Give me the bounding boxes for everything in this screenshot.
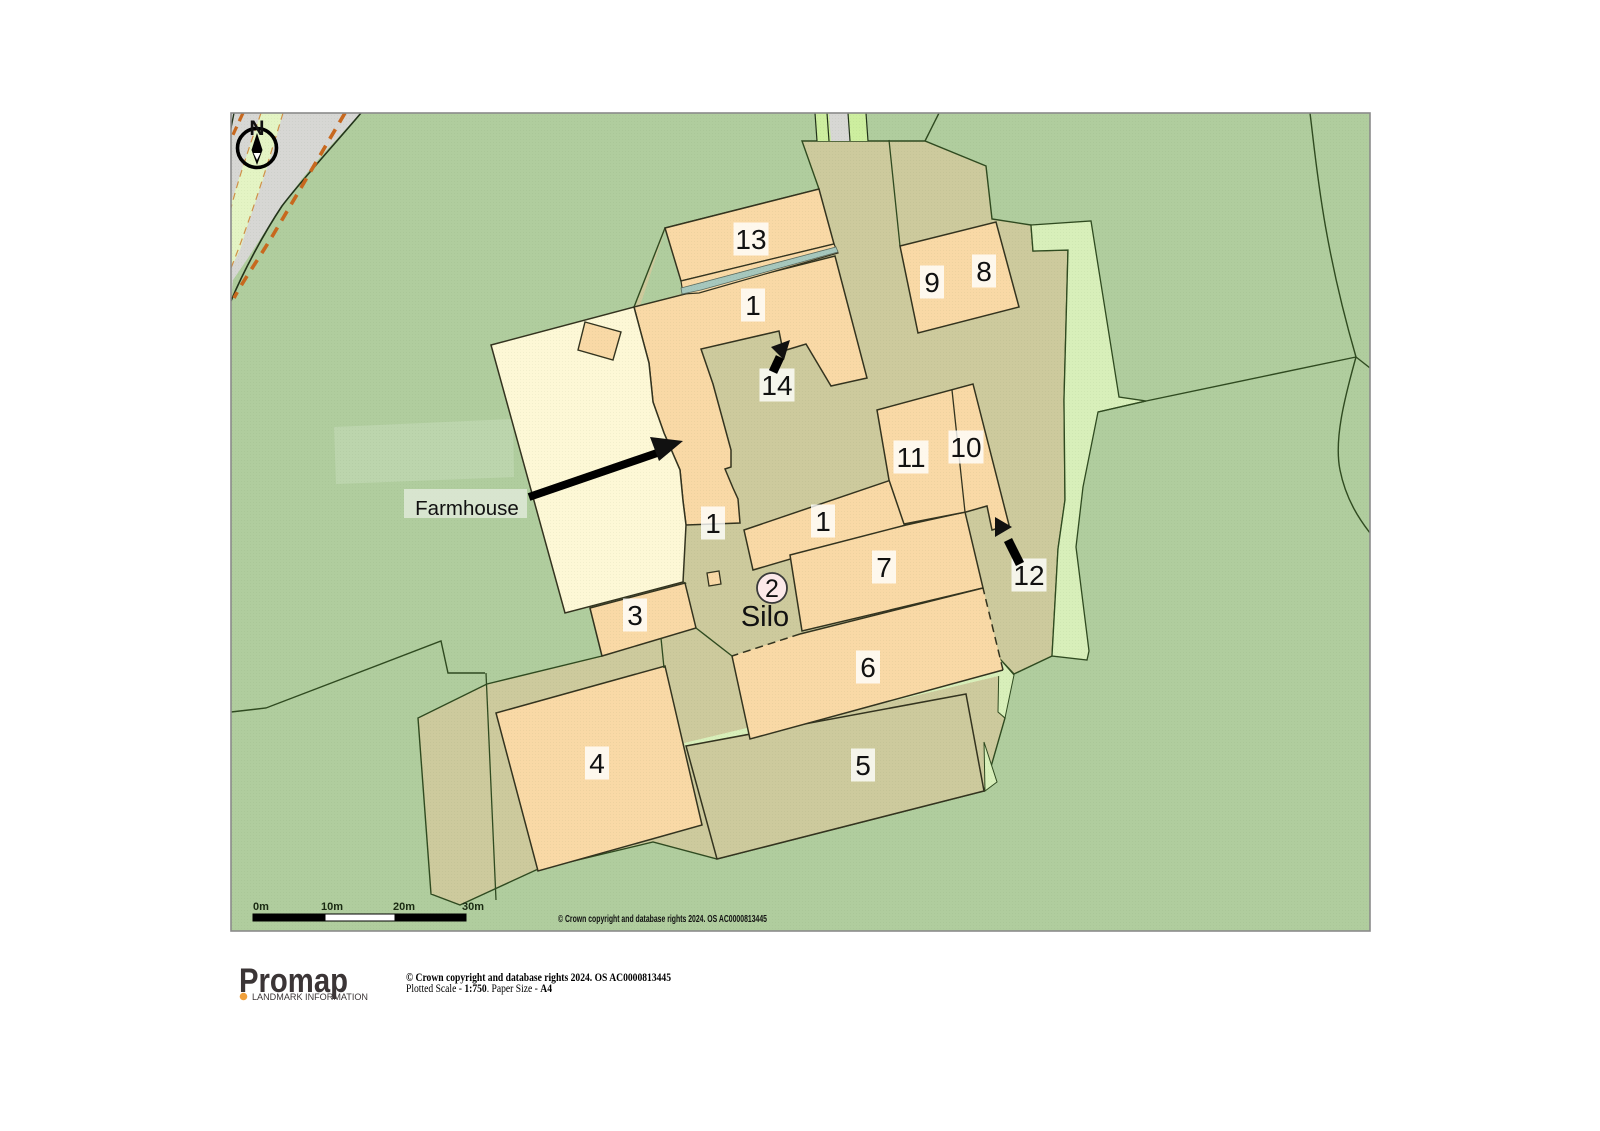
svg-text:4: 4 xyxy=(589,748,605,779)
svg-text:3: 3 xyxy=(627,600,643,631)
svg-text:5: 5 xyxy=(855,750,871,781)
svg-text:© Crown copyright and database: © Crown copyright and database rights 20… xyxy=(558,914,767,925)
svg-text:1: 1 xyxy=(745,290,761,321)
svg-text:2: 2 xyxy=(765,575,779,603)
svg-text:10m: 10m xyxy=(321,901,343,913)
svg-text:30m: 30m xyxy=(462,901,484,913)
svg-text:11: 11 xyxy=(896,442,925,473)
svg-text:8: 8 xyxy=(976,256,992,287)
svg-text:Silo: Silo xyxy=(741,601,789,633)
svg-text:0m: 0m xyxy=(253,901,269,913)
svg-text:6: 6 xyxy=(860,652,876,683)
svg-text:Farmhouse: Farmhouse xyxy=(415,497,519,520)
svg-text:20m: 20m xyxy=(393,901,415,913)
svg-text:10: 10 xyxy=(950,432,981,463)
svg-text:9: 9 xyxy=(924,267,940,298)
svg-text:13: 13 xyxy=(735,224,766,255)
svg-text:1: 1 xyxy=(815,506,831,537)
svg-text:LANDMARK INFORMATION: LANDMARK INFORMATION xyxy=(252,992,368,1002)
svg-text:1: 1 xyxy=(705,508,721,539)
svg-text:14: 14 xyxy=(761,370,792,401)
svg-text:7: 7 xyxy=(876,552,892,583)
svg-text:Plotted Scale - 1:750. Paper S: Plotted Scale - 1:750. Paper Size - A4 xyxy=(406,981,552,995)
